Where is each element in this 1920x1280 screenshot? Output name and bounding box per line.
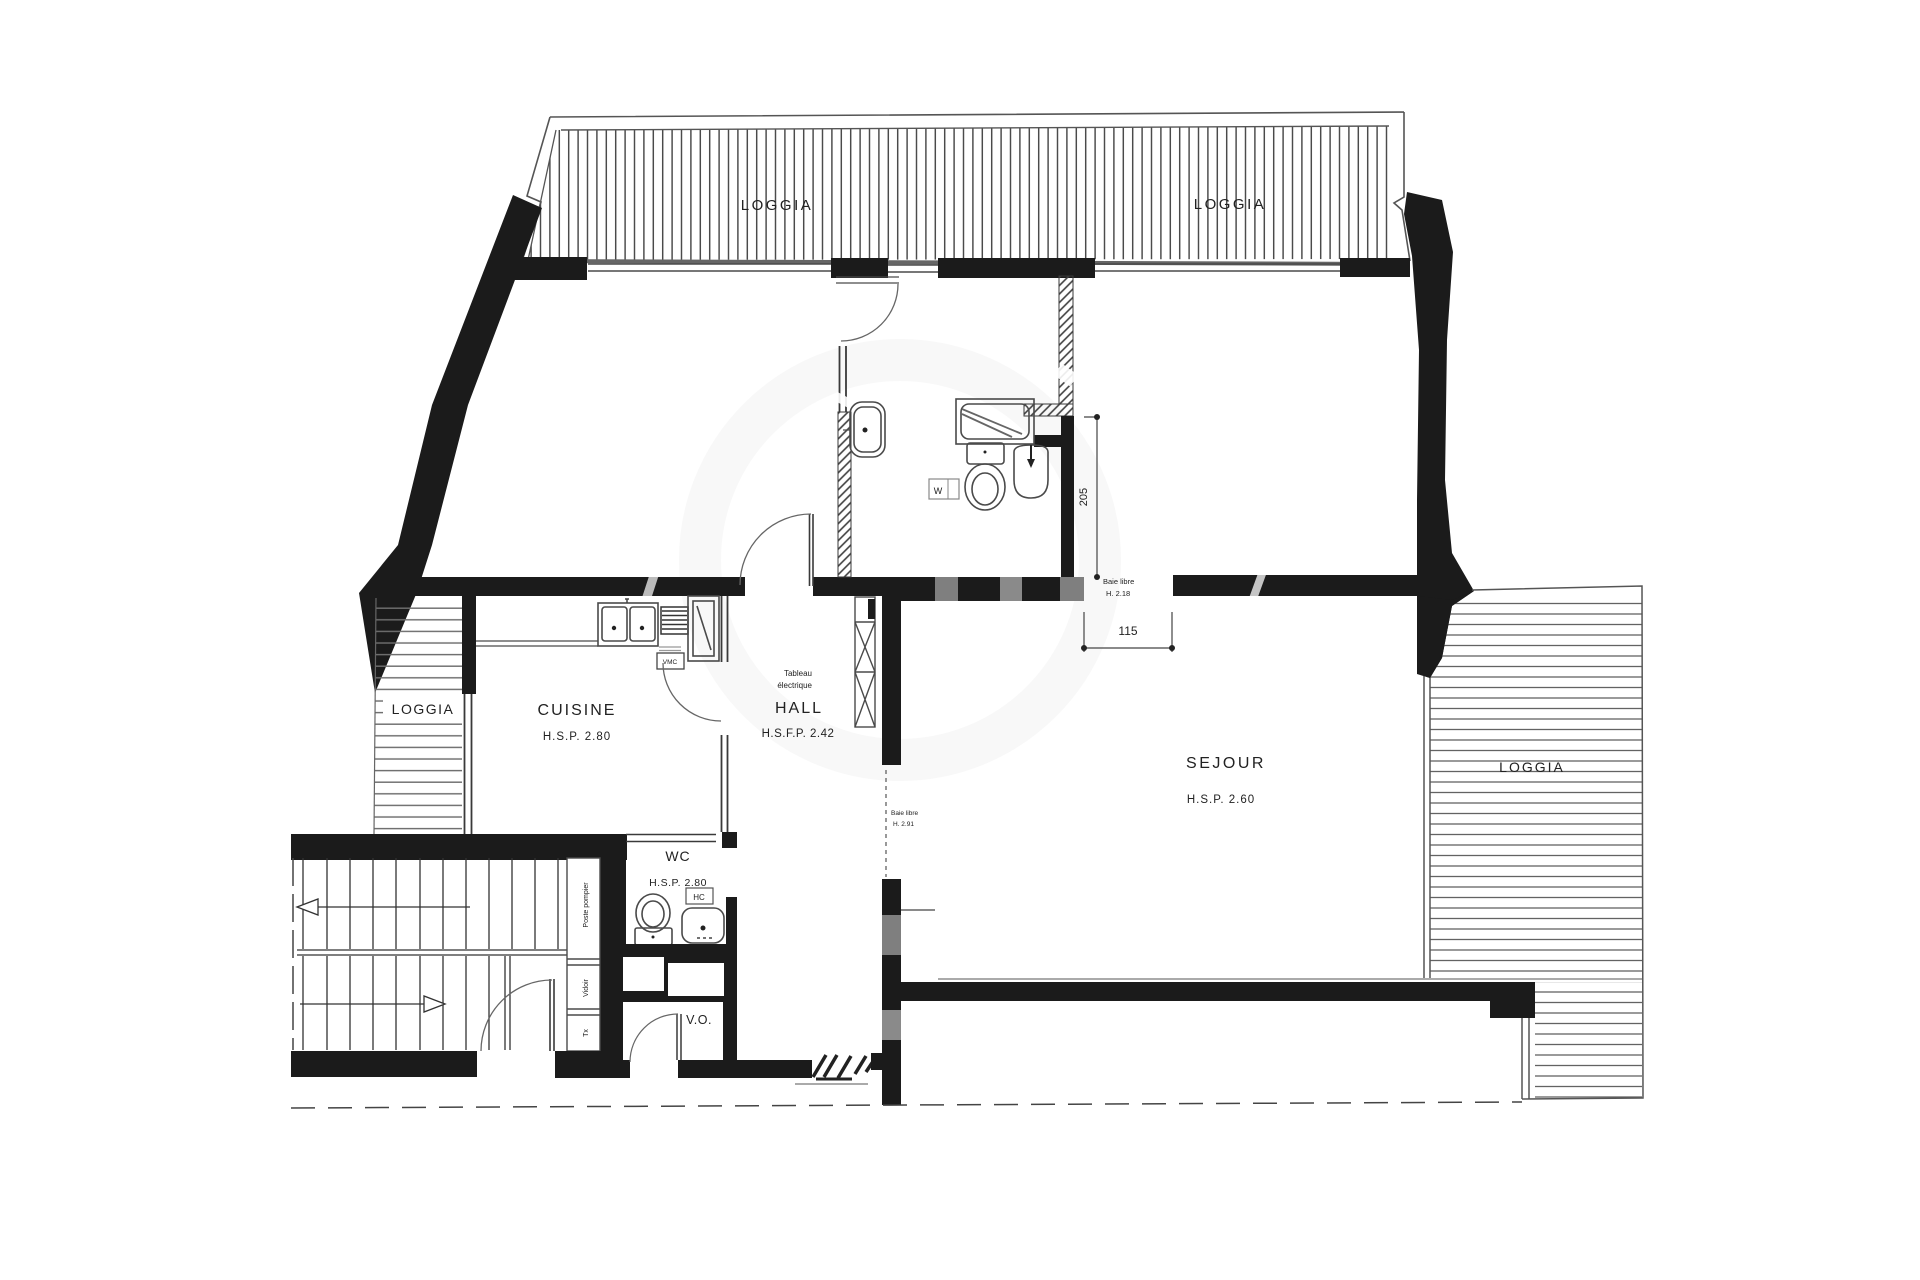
svg-text:LOGGIA: LOGGIA [392, 701, 455, 717]
svg-text:CUISINE: CUISINE [538, 702, 617, 719]
svg-text:LOGGIA: LOGGIA [1499, 759, 1565, 775]
svg-text:SEJOUR: SEJOUR [1186, 755, 1266, 772]
svg-text:Tableau: Tableau [784, 669, 812, 678]
svg-text:Vidoir: Vidoir [583, 978, 590, 996]
svg-text:HC: HC [693, 893, 705, 902]
svg-text:HALL: HALL [775, 700, 823, 717]
svg-text:205: 205 [1078, 488, 1090, 506]
svg-text:électrique: électrique [777, 681, 812, 690]
svg-text:Baie libre: Baie libre [891, 810, 918, 817]
svg-text:H.S.P. 2.80: H.S.P. 2.80 [543, 731, 611, 743]
svg-text:VMC: VMC [663, 659, 678, 666]
svg-text:H.S.F.P. 2.42: H.S.F.P. 2.42 [762, 728, 835, 740]
svg-text:WC: WC [665, 848, 690, 864]
svg-text:H.S.P. 2.80: H.S.P. 2.80 [649, 877, 707, 889]
svg-text:V.O.: V.O. [686, 1013, 712, 1027]
svg-text:H.S.P. 2.60: H.S.P. 2.60 [1187, 794, 1255, 806]
svg-text:LOGGIA: LOGGIA [741, 197, 814, 214]
svg-text:H. 2.18: H. 2.18 [1106, 589, 1130, 598]
svg-text:H. 2.91: H. 2.91 [893, 821, 914, 828]
svg-text:115: 115 [1118, 624, 1137, 638]
svg-text:Poste pompier: Poste pompier [583, 882, 590, 928]
svg-text:W: W [934, 486, 943, 496]
svg-text:Tx: Tx [583, 1029, 590, 1037]
svg-text:LOGGIA: LOGGIA [1194, 196, 1267, 213]
svg-text:Baie libre: Baie libre [1103, 577, 1134, 586]
